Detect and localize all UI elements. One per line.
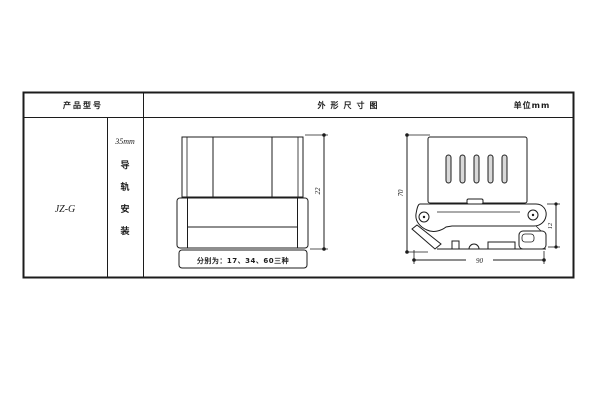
rail-mount-vertical-label: 导 轨 安 装: [119, 160, 130, 237]
mount-char-1: 导: [120, 160, 129, 171]
header-outline-title: 外形尺寸图: [318, 100, 383, 110]
mount-char-3: 安: [120, 203, 129, 215]
drawing-canvas: 产品型号 外形尺寸图 单位mm JZ-G 35mm 导 轨 安 装 22: [0, 0, 600, 400]
header-product-model: 产品型号: [63, 100, 103, 110]
side-height-dim-label: 70: [397, 189, 405, 197]
side-body-notch: [467, 199, 483, 204]
front-base: [177, 198, 308, 248]
side-depth-dim-label: 90: [476, 257, 484, 265]
side-view-drawing: [405, 133, 560, 264]
mount-char-2: 轨: [120, 181, 129, 193]
rail-size-label: 35mm: [114, 137, 135, 146]
header-unit-label: 单位mm: [514, 100, 551, 110]
front-view-drawing: [177, 133, 328, 268]
front-view-note: 分别为：17、34、60三种: [197, 256, 289, 265]
rail-spring-block: [519, 231, 546, 249]
product-model-value: JZ-G: [55, 204, 76, 215]
front-body: [182, 137, 303, 197]
mount-char-4: 装: [119, 225, 130, 237]
side-clip-dim-label: 12: [547, 222, 554, 229]
vent-slots: [446, 155, 507, 183]
dimension-drawing-page: 产品型号 外形尺寸图 单位mm JZ-G 35mm 导 轨 安 装 22: [0, 0, 600, 400]
front-height-dim-label: 22: [314, 187, 322, 195]
din-clip: [416, 204, 546, 231]
